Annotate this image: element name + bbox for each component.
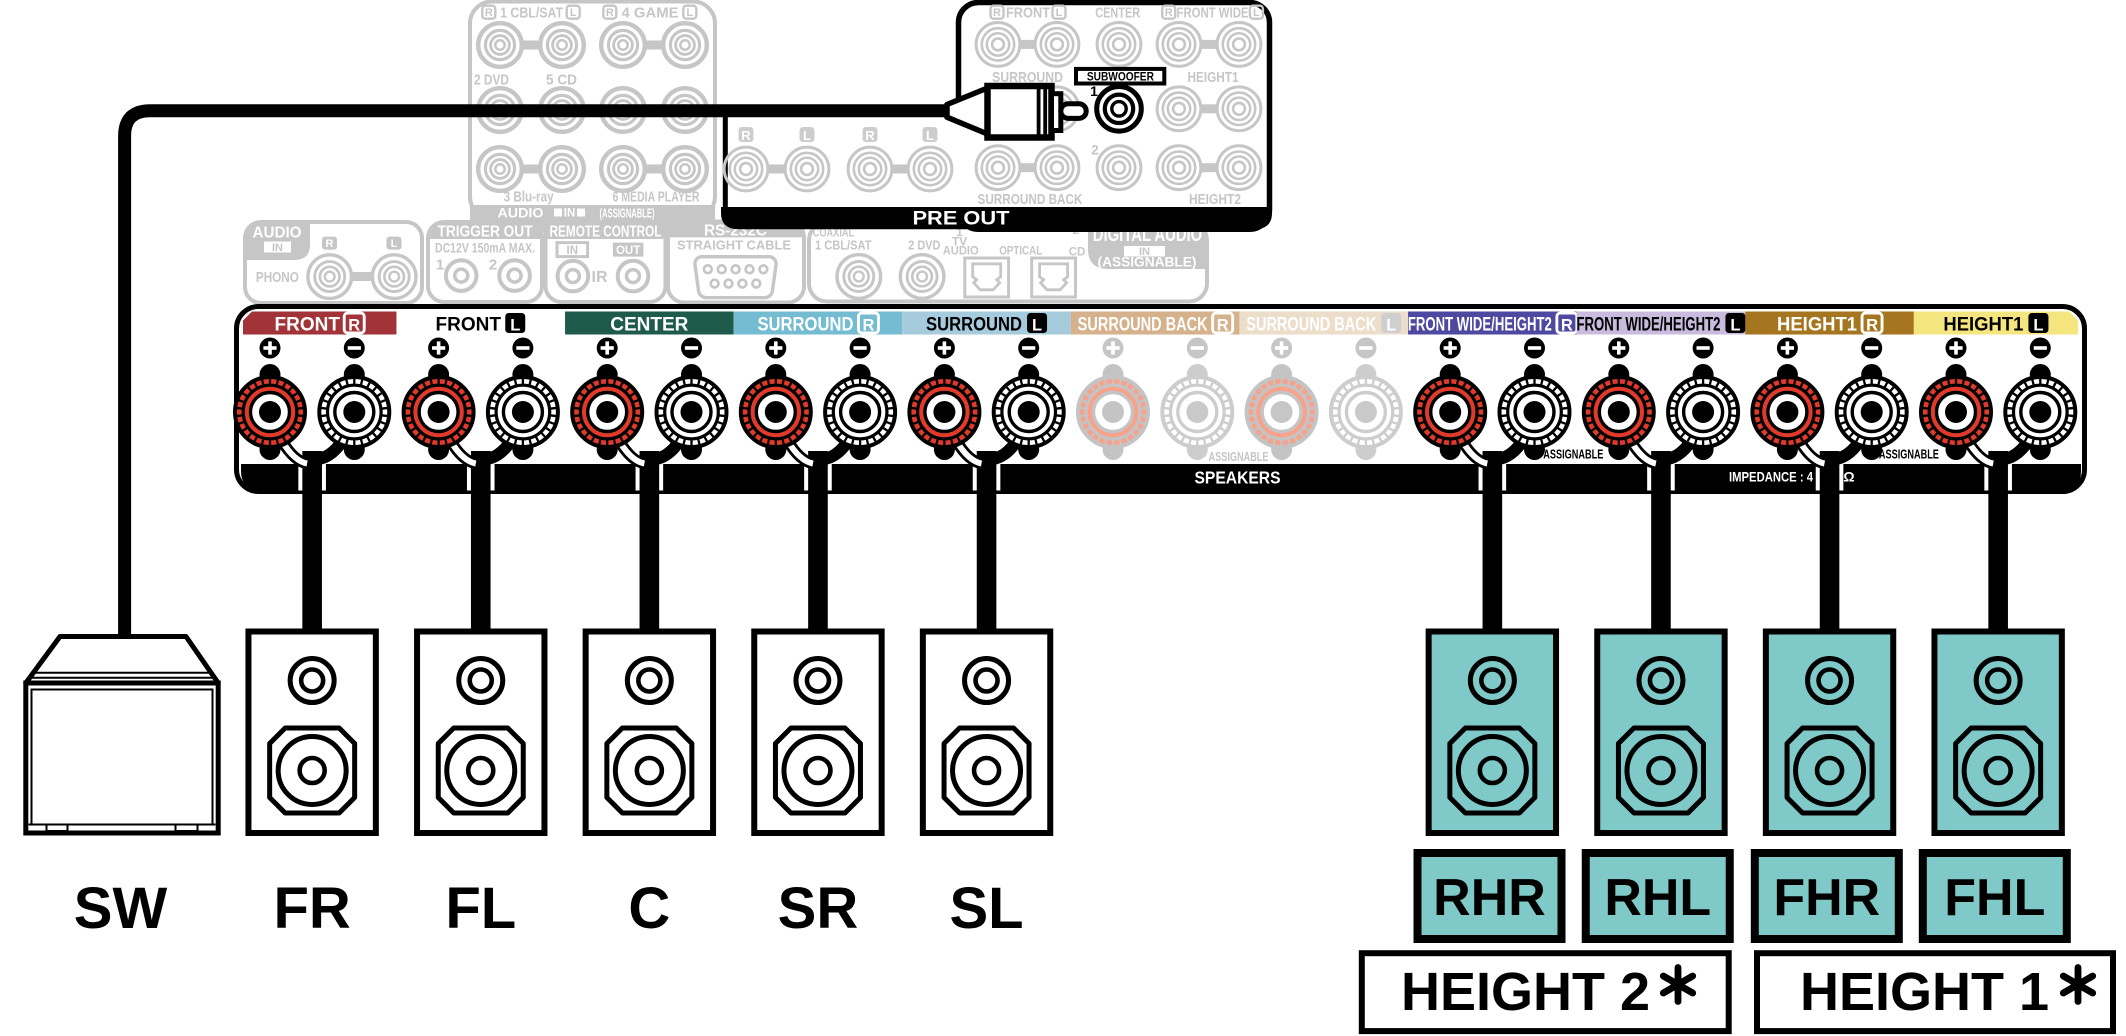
svg-text:FRONT WIDE/HEIGHT2: FRONT WIDE/HEIGHT2 [1576, 315, 1720, 336]
svg-text:R: R [485, 7, 493, 19]
svg-text:L: L [510, 317, 520, 335]
svg-text:RHR: RHR [1433, 869, 1546, 927]
svg-text:L: L [1386, 317, 1396, 335]
svg-text:IN: IN [567, 245, 579, 257]
svg-text:HEIGHT1: HEIGHT1 [1777, 315, 1857, 336]
svg-text:IN: IN [272, 242, 283, 254]
svg-text:2: 2 [1091, 142, 1099, 157]
svg-text:RHL: RHL [1604, 869, 1711, 927]
svg-text:FRONT: FRONT [1006, 6, 1050, 22]
svg-text:L: L [1056, 7, 1063, 19]
svg-text:AUDIO: AUDIO [943, 246, 979, 258]
svg-text:SURROUND BACK: SURROUND BACK [1078, 315, 1208, 336]
svg-text:R: R [1866, 317, 1878, 335]
svg-text:R: R [862, 317, 874, 335]
svg-text:FRONT WIDE/HEIGHT2: FRONT WIDE/HEIGHT2 [1408, 315, 1552, 336]
svg-text:FR: FR [273, 876, 350, 941]
svg-text:ASSIGNABLE: ASSIGNABLE [1543, 447, 1603, 462]
svg-text:DC12V 150mA MAX.: DC12V 150mA MAX. [435, 240, 535, 256]
svg-text:AUDIO: AUDIO [498, 205, 544, 221]
svg-text:4 GAME: 4 GAME [622, 5, 679, 22]
svg-text:C: C [628, 876, 670, 941]
svg-text:R: R [1217, 317, 1229, 335]
svg-text:L: L [1253, 7, 1260, 19]
svg-text:1: 1 [436, 257, 444, 274]
svg-text:1: 1 [1090, 83, 1098, 99]
svg-text:IN: IN [564, 208, 576, 220]
svg-text:FHR: FHR [1773, 869, 1880, 927]
svg-text:SPEAKERS: SPEAKERS [1195, 468, 1281, 488]
svg-text:SURROUND: SURROUND [926, 315, 1022, 336]
svg-text:TRIGGER OUT: TRIGGER OUT [438, 223, 533, 240]
svg-text:SURROUND: SURROUND [757, 315, 853, 336]
svg-text:CENTER: CENTER [1095, 6, 1140, 22]
svg-text:R: R [1165, 7, 1173, 19]
svg-text:SW: SW [74, 876, 168, 941]
svg-text:R: R [993, 7, 1001, 19]
svg-text:CENTER: CENTER [610, 315, 688, 336]
svg-text:HEIGHT 1: HEIGHT 1 [1800, 962, 2049, 1022]
svg-text:2 DVD: 2 DVD [908, 238, 940, 253]
svg-text:L: L [686, 7, 693, 19]
svg-text:FRONT WIDE: FRONT WIDE [1177, 6, 1249, 22]
svg-text:L: L [1032, 317, 1042, 335]
svg-text:R: R [741, 128, 751, 143]
svg-text:ASSIGNABLE: ASSIGNABLE [1209, 450, 1269, 464]
svg-text:2 DVD: 2 DVD [474, 72, 509, 89]
svg-text:SURROUND BACK: SURROUND BACK [978, 192, 1083, 208]
svg-text:HEIGHT1: HEIGHT1 [1188, 70, 1239, 86]
svg-text:IMPEDANCE : 4: IMPEDANCE : 4 [1729, 469, 1813, 485]
svg-text:(ASSIGNABLE): (ASSIGNABLE) [1098, 255, 1197, 270]
svg-text:REMOTE CONTROL: REMOTE CONTROL [550, 223, 662, 240]
svg-text:R: R [348, 317, 360, 335]
svg-text:FRONT: FRONT [436, 315, 502, 336]
svg-text:1 CBL/SAT: 1 CBL/SAT [815, 238, 872, 253]
svg-text:R: R [326, 238, 334, 250]
svg-text:ASSIGNABLE: ASSIGNABLE [1879, 447, 1939, 462]
svg-text:R: R [1561, 317, 1573, 335]
svg-text:STRAIGHT CABLE: STRAIGHT CABLE [677, 237, 791, 252]
svg-text:FHL: FHL [1944, 869, 2045, 927]
svg-text:SL: SL [949, 876, 1023, 941]
svg-text:HEIGHT2: HEIGHT2 [1189, 192, 1241, 208]
svg-text:L: L [1730, 317, 1740, 335]
svg-text:1 CBL/SAT: 1 CBL/SAT [500, 5, 563, 22]
svg-text:FL: FL [445, 876, 516, 941]
svg-text:2: 2 [489, 257, 497, 274]
svg-text:PRE OUT: PRE OUT [913, 209, 1010, 230]
svg-text:L: L [570, 7, 577, 19]
svg-text:L: L [803, 128, 811, 143]
svg-text:5 CD: 5 CD [546, 72, 577, 89]
svg-text:SR: SR [778, 876, 859, 941]
svg-text:HEIGHT1: HEIGHT1 [1943, 315, 2023, 336]
svg-text:SUBWOOFER: SUBWOOFER [1087, 70, 1154, 84]
svg-text:AUDIO: AUDIO [253, 225, 302, 242]
svg-text:PHONO: PHONO [256, 270, 299, 286]
svg-text:R: R [865, 128, 875, 143]
svg-text:FRONT: FRONT [275, 315, 341, 336]
svg-text:L: L [2033, 317, 2043, 335]
svg-text:SURROUND BACK: SURROUND BACK [1246, 315, 1376, 336]
svg-text:HEIGHT 2: HEIGHT 2 [1401, 962, 1650, 1022]
svg-text:IR: IR [592, 269, 608, 286]
svg-text:6 MEDIA PLAYER: 6 MEDIA PLAYER [613, 189, 700, 206]
svg-text:L: L [391, 238, 398, 250]
svg-text:3 Blu-ray: 3 Blu-ray [504, 189, 555, 206]
svg-text:L: L [926, 128, 934, 143]
svg-text:(ASSIGNABLE): (ASSIGNABLE) [600, 206, 655, 221]
svg-text:R: R [606, 7, 614, 19]
svg-text:OPTICAL: OPTICAL [999, 246, 1042, 258]
svg-text:OUT: OUT [616, 245, 640, 257]
svg-text:Ω: Ω [1843, 469, 1854, 485]
